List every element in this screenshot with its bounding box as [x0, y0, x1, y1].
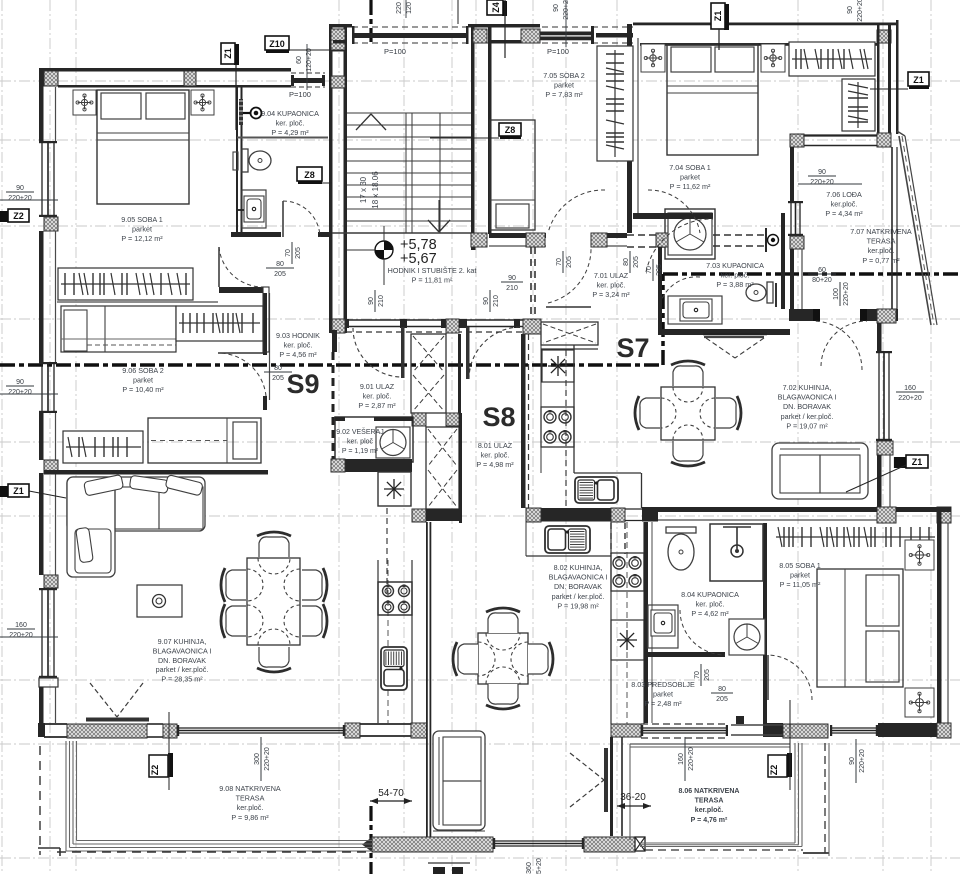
svg-text:ker.ploč.: ker.ploč.	[695, 807, 723, 814]
svg-text:210: 210	[493, 295, 500, 307]
svg-text:ker. ploč.: ker. ploč.	[284, 341, 313, 350]
svg-text:90: 90	[483, 297, 490, 305]
svg-text:36-20: 36-20	[620, 792, 646, 803]
svg-text:S8: S8	[482, 402, 515, 432]
svg-text:P = 4,56 m²: P = 4,56 m²	[279, 350, 317, 359]
svg-text:100: 100	[833, 288, 840, 300]
svg-text:Z8: Z8	[304, 170, 315, 180]
svg-text:P = 1,19 m²: P = 1,19 m²	[342, 448, 379, 455]
svg-text:P = 3,88 m²: P = 3,88 m²	[716, 280, 754, 289]
svg-text:205: 205	[274, 271, 286, 278]
svg-text:P = 2,87 m²: P = 2,87 m²	[358, 401, 396, 410]
svg-text:220+20: 220+20	[264, 747, 271, 771]
svg-text:70: 70	[285, 249, 292, 257]
svg-text:Z1: Z1	[13, 486, 24, 496]
svg-text:Z2: Z2	[150, 765, 160, 776]
svg-text:7.03 KUPAONICA: 7.03 KUPAONICA	[706, 261, 764, 270]
svg-text:90: 90	[847, 6, 854, 14]
svg-text:ker.ploč.: ker.ploč.	[831, 200, 858, 209]
svg-text:80: 80	[623, 258, 630, 266]
svg-text:7.06 LOĐA: 7.06 LOĐA	[826, 190, 862, 199]
svg-text:360: 360	[526, 862, 533, 874]
svg-text:8.06 NATKRIVENA: 8.06 NATKRIVENA	[679, 788, 740, 795]
svg-text:9.04 KUPAONICA: 9.04 KUPAONICA	[261, 109, 319, 118]
svg-text:210: 210	[506, 285, 518, 292]
svg-text:8.05 SOBA 1: 8.05 SOBA 1	[779, 561, 821, 570]
svg-text:205: 205	[295, 247, 302, 259]
svg-text:90: 90	[553, 4, 560, 12]
svg-text:Z1: Z1	[223, 48, 233, 59]
svg-text:80: 80	[718, 686, 726, 693]
svg-text:220+20: 220+20	[859, 749, 866, 773]
svg-text:70: 70	[694, 671, 701, 679]
svg-text:ker. ploč.: ker. ploč.	[721, 271, 750, 280]
svg-text:ker. ploč.: ker. ploč.	[481, 451, 510, 460]
svg-text:220+20: 220+20	[898, 395, 922, 402]
svg-text:17 x 30: 17 x 30	[359, 176, 368, 203]
svg-text:ker. ploč.: ker. ploč.	[597, 281, 626, 290]
svg-text:90: 90	[849, 757, 856, 765]
svg-text:P=100: P=100	[384, 47, 406, 56]
svg-text:parket / ker.ploč.: parket / ker.ploč.	[156, 665, 209, 674]
svg-text:ker.ploč.: ker.ploč.	[237, 803, 264, 812]
svg-text:80+20: 80+20	[812, 277, 832, 284]
svg-text:70: 70	[556, 258, 563, 266]
svg-text:18 x 18.06: 18 x 18.06	[371, 171, 380, 209]
svg-text:DN. BORAVAK: DN. BORAVAK	[783, 402, 831, 411]
svg-text:parket / ker.ploč.: parket / ker.ploč.	[781, 412, 834, 421]
svg-text:205: 205	[716, 696, 728, 703]
svg-text:70: 70	[646, 266, 653, 274]
svg-text:220+20: 220+20	[843, 282, 850, 306]
svg-text:P = 19,98 m²: P = 19,98 m²	[557, 601, 599, 610]
svg-text:Z2: Z2	[13, 211, 24, 221]
svg-text:parket: parket	[790, 571, 810, 580]
svg-text:7.01 ULAZ: 7.01 ULAZ	[594, 271, 629, 280]
svg-text:P = 4,98 m²: P = 4,98 m²	[476, 460, 514, 469]
svg-text:HODNIK I STUBIŠTE 2. kat: HODNIK I STUBIŠTE 2. kat	[388, 266, 477, 275]
svg-text:P=100: P=100	[289, 90, 311, 99]
svg-text:205: 205	[633, 256, 640, 268]
svg-text:220+20: 220+20	[8, 389, 32, 396]
svg-text:8.03 PREDSOBLJE: 8.03 PREDSOBLJE	[631, 680, 695, 689]
svg-text:220+20: 220+20	[563, 0, 570, 20]
svg-text:ker.ploč.: ker.ploč.	[868, 246, 895, 255]
svg-text:BLAGAVAONICA I: BLAGAVAONICA I	[153, 646, 212, 655]
svg-text:205: 205	[272, 375, 284, 382]
svg-text:Z2: Z2	[769, 765, 779, 776]
svg-text:80: 80	[274, 365, 282, 372]
svg-text:7.02 KUHINJA,: 7.02 KUHINJA,	[783, 383, 832, 392]
svg-text:300: 300	[254, 753, 261, 765]
svg-text:P = 10,40 m²: P = 10,40 m²	[122, 385, 164, 394]
svg-text:9.06 SOBA 2: 9.06 SOBA 2	[122, 366, 164, 375]
svg-text:220+20: 220+20	[9, 632, 33, 639]
svg-text:ker. ploč.: ker. ploč.	[696, 600, 725, 609]
svg-text:parket: parket	[554, 81, 574, 90]
svg-text:54-70: 54-70	[378, 788, 404, 799]
svg-text:P=100: P=100	[547, 47, 569, 56]
svg-text:P = 4,76 m²: P = 4,76 m²	[691, 817, 728, 824]
svg-text:P = 28,35 m²: P = 28,35 m²	[161, 675, 203, 684]
svg-text:TERASA: TERASA	[236, 794, 265, 803]
svg-text:9.08 NATKRIVENA: 9.08 NATKRIVENA	[219, 784, 281, 793]
svg-text:90: 90	[16, 185, 24, 192]
svg-text:DN. BORAVAK: DN. BORAVAK	[554, 582, 602, 591]
svg-text:P = 11,81 m²: P = 11,81 m²	[412, 276, 453, 285]
svg-text:P = 4,62 m²: P = 4,62 m²	[691, 609, 729, 618]
svg-text:Z4: Z4	[491, 2, 501, 13]
svg-text:120: 120	[406, 2, 413, 14]
svg-text:220+20: 220+20	[8, 195, 32, 202]
svg-text:220+20: 220+20	[810, 179, 834, 186]
svg-text:TERASA: TERASA	[867, 237, 896, 246]
svg-text:220: 220	[396, 2, 403, 14]
svg-text:Z10: Z10	[269, 39, 285, 49]
svg-text:220+20: 220+20	[857, 0, 864, 22]
svg-text:P = 11,05 m²: P = 11,05 m²	[780, 580, 821, 589]
svg-text:9.07 KUHINJA,: 9.07 KUHINJA,	[158, 637, 207, 646]
svg-text:7.07 NATKRIVENA: 7.07 NATKRIVENA	[850, 227, 912, 236]
svg-text:DN. BORAVAK: DN. BORAVAK	[158, 656, 206, 665]
svg-text:parket: parket	[132, 225, 152, 234]
svg-text:9.02 VEŠERAJ: 9.02 VEŠERAJ	[336, 427, 383, 436]
svg-text:Z1: Z1	[713, 11, 723, 22]
svg-text:9.01 ULAZ: 9.01 ULAZ	[360, 382, 395, 391]
svg-text:parket: parket	[133, 376, 153, 385]
svg-text:S7: S7	[616, 333, 649, 363]
svg-text:160: 160	[15, 622, 27, 629]
svg-text:8.04 KUPAONICA: 8.04 KUPAONICA	[681, 590, 739, 599]
svg-text:BLAGAVAONICA I: BLAGAVAONICA I	[778, 393, 837, 402]
svg-text:7.05 SOBA 2: 7.05 SOBA 2	[543, 71, 585, 80]
svg-text:parket / ker.ploč.: parket / ker.ploč.	[552, 592, 605, 601]
svg-text:9.03 HODNIK: 9.03 HODNIK	[276, 331, 320, 340]
svg-text:P = 9,86 m²: P = 9,86 m²	[231, 813, 269, 822]
svg-text:220+20: 220+20	[688, 747, 695, 771]
svg-text:Z1: Z1	[913, 75, 924, 85]
svg-text:80: 80	[276, 261, 284, 268]
svg-text:205: 205	[656, 264, 663, 276]
svg-text:ker. ploč: ker. ploč	[347, 439, 374, 446]
svg-text:P = 19,07 m²: P = 19,07 m²	[786, 421, 828, 430]
svg-text:parket: parket	[680, 173, 700, 182]
svg-text:60: 60	[296, 56, 303, 64]
svg-text:S9: S9	[286, 369, 319, 399]
svg-text:160: 160	[678, 753, 685, 765]
svg-text:90: 90	[16, 379, 24, 386]
svg-text:P = 11,62 m²: P = 11,62 m²	[670, 182, 711, 191]
svg-text:ker. ploč.: ker. ploč.	[363, 392, 392, 401]
svg-text:TERASA: TERASA	[695, 798, 724, 805]
svg-text:Z8: Z8	[505, 125, 516, 135]
svg-text:160: 160	[904, 385, 916, 392]
svg-text:205: 205	[704, 669, 711, 681]
svg-text:P = 3,24 m²: P = 3,24 m²	[592, 290, 630, 299]
svg-text:205: 205	[566, 256, 573, 268]
svg-text:parket: parket	[653, 690, 673, 699]
svg-text:BLAGAVAONICA I: BLAGAVAONICA I	[549, 573, 608, 582]
svg-text:P = 12,12 m²: P = 12,12 m²	[121, 234, 163, 243]
svg-text:8.01 ULAZ: 8.01 ULAZ	[478, 441, 513, 450]
svg-text:90: 90	[508, 275, 516, 282]
svg-text:P = 2,48 m²: P = 2,48 m²	[644, 699, 682, 708]
svg-text:ker. ploč.: ker. ploč.	[276, 119, 305, 128]
svg-text:P = 4,29 m²: P = 4,29 m²	[271, 128, 309, 137]
svg-text:7.04 SOBA 1: 7.04 SOBA 1	[669, 163, 711, 172]
svg-text:P = 0,77 m²: P = 0,77 m²	[862, 256, 900, 265]
svg-text:60: 60	[818, 267, 826, 274]
svg-text:90: 90	[368, 297, 375, 305]
svg-text:+5,67: +5,67	[400, 251, 437, 267]
svg-text:9.05 SOBA 1: 9.05 SOBA 1	[121, 215, 163, 224]
svg-text:8.02 KUHINJA,: 8.02 KUHINJA,	[554, 563, 603, 572]
svg-text:210: 210	[378, 295, 385, 307]
svg-text:P = 4,34 m²: P = 4,34 m²	[825, 209, 863, 218]
svg-text:P = 7,83 m²: P = 7,83 m²	[545, 90, 583, 99]
svg-text:15+20: 15+20	[536, 858, 543, 874]
svg-text:90: 90	[818, 169, 826, 176]
svg-text:Z1: Z1	[912, 457, 923, 467]
